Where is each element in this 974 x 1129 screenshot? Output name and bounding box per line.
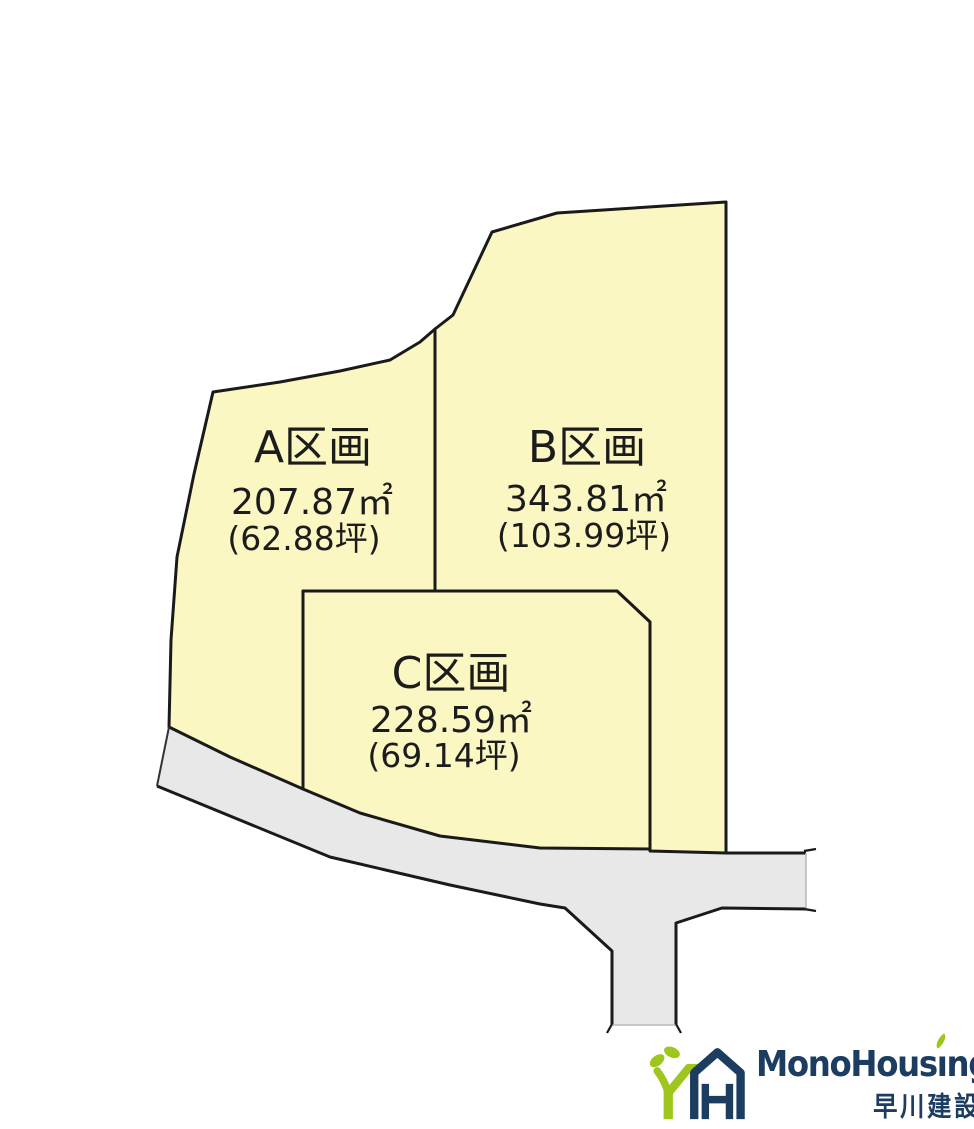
parcel-b-area-tsubo: (103.99坪) [497, 516, 671, 555]
house-icon [694, 1052, 740, 1119]
parcel-a-label: A区画 [254, 422, 372, 473]
company-name: 早川建設 [873, 1085, 974, 1124]
tree-icon [647, 1044, 696, 1119]
road-continue-tick [804, 909, 816, 911]
road-branch-right-edge [676, 908, 806, 1025]
diagram-svg: A区画 207.87㎡ (62.88坪) B区画 343.81㎡ (103.99… [0, 0, 974, 1125]
parcel-c-label: C区画 [392, 648, 511, 699]
company-logo: MonoHousıng 早川建設 [646, 1044, 974, 1124]
parcel-c-area-sqm: 228.59㎡ [370, 699, 532, 741]
parcel-b-label: B区画 [528, 422, 646, 473]
brand-name-i: ı [937, 1044, 947, 1085]
road-continue-tick [607, 1024, 612, 1033]
brand-name: MonoHousıng [756, 1044, 974, 1085]
brand-i-letter: ı [937, 1044, 947, 1085]
parcel-a-area-tsubo: (62.88坪) [227, 519, 380, 558]
land-plot-map: A区画 207.87㎡ (62.88坪) B区画 343.81㎡ (103.99… [0, 0, 974, 1125]
brand-name-pre: MonoHous [756, 1044, 937, 1085]
parcel-a-area-sqm: 207.87㎡ [231, 481, 393, 523]
parcel-b-area-sqm: 343.81㎡ [505, 478, 667, 520]
logo-icon [646, 1044, 748, 1120]
road-continue-tick [676, 1024, 681, 1033]
parcel-c-area-tsubo: (69.14坪) [367, 736, 520, 775]
logo-text: MonoHousıng 早川建設 [756, 1044, 974, 1124]
road-continue-tick [804, 849, 816, 851]
brand-name-post: ng [947, 1044, 974, 1085]
